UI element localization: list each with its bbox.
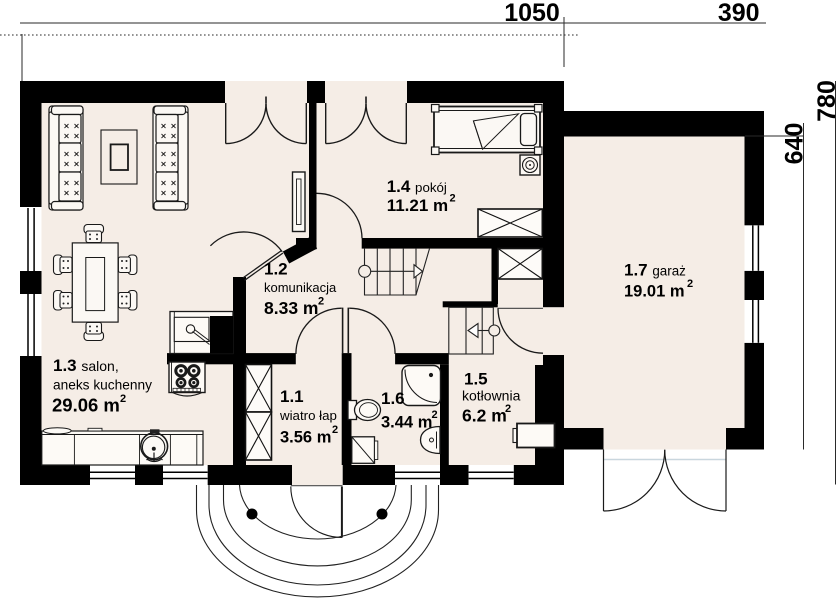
- svg-text:8.33 m: 8.33 m: [264, 298, 318, 318]
- svg-text:29.06 m: 29.06 m: [52, 395, 120, 416]
- svg-text:1.6: 1.6: [381, 389, 405, 408]
- svg-text:2: 2: [687, 278, 693, 290]
- svg-text:2: 2: [505, 403, 511, 415]
- svg-text:1.4 pokój: 1.4 pokój: [387, 177, 447, 196]
- svg-text:2: 2: [332, 424, 338, 436]
- svg-text:3.44 m: 3.44 m: [381, 414, 432, 432]
- svg-text:780: 780: [813, 80, 839, 122]
- svg-text:1050: 1050: [504, 0, 560, 27]
- svg-text:aneks kuchenny: aneks kuchenny: [53, 378, 152, 393]
- svg-text:1.7 garaż: 1.7 garaż: [624, 261, 686, 280]
- svg-text:6.2 m: 6.2 m: [462, 406, 507, 426]
- svg-text:kotłownia: kotłownia: [462, 388, 521, 404]
- svg-text:komunikacja: komunikacja: [264, 280, 337, 295]
- svg-text:2: 2: [120, 393, 126, 405]
- svg-text:640: 640: [781, 123, 809, 165]
- svg-text:1.5: 1.5: [464, 370, 488, 389]
- svg-text:1.3 salon,: 1.3 salon,: [53, 356, 119, 375]
- svg-text:2: 2: [450, 193, 456, 205]
- svg-text:11.21 m: 11.21 m: [387, 196, 448, 215]
- svg-text:390: 390: [718, 0, 760, 27]
- svg-text:2: 2: [318, 296, 324, 308]
- svg-text:wiatro łap: wiatro łap: [279, 408, 337, 423]
- svg-text:2: 2: [432, 409, 438, 421]
- svg-text:19.01 m: 19.01 m: [624, 283, 685, 301]
- svg-text:3.56 m: 3.56 m: [280, 429, 331, 447]
- svg-text:1.2: 1.2: [264, 260, 288, 279]
- svg-text:1.1: 1.1: [280, 387, 304, 406]
